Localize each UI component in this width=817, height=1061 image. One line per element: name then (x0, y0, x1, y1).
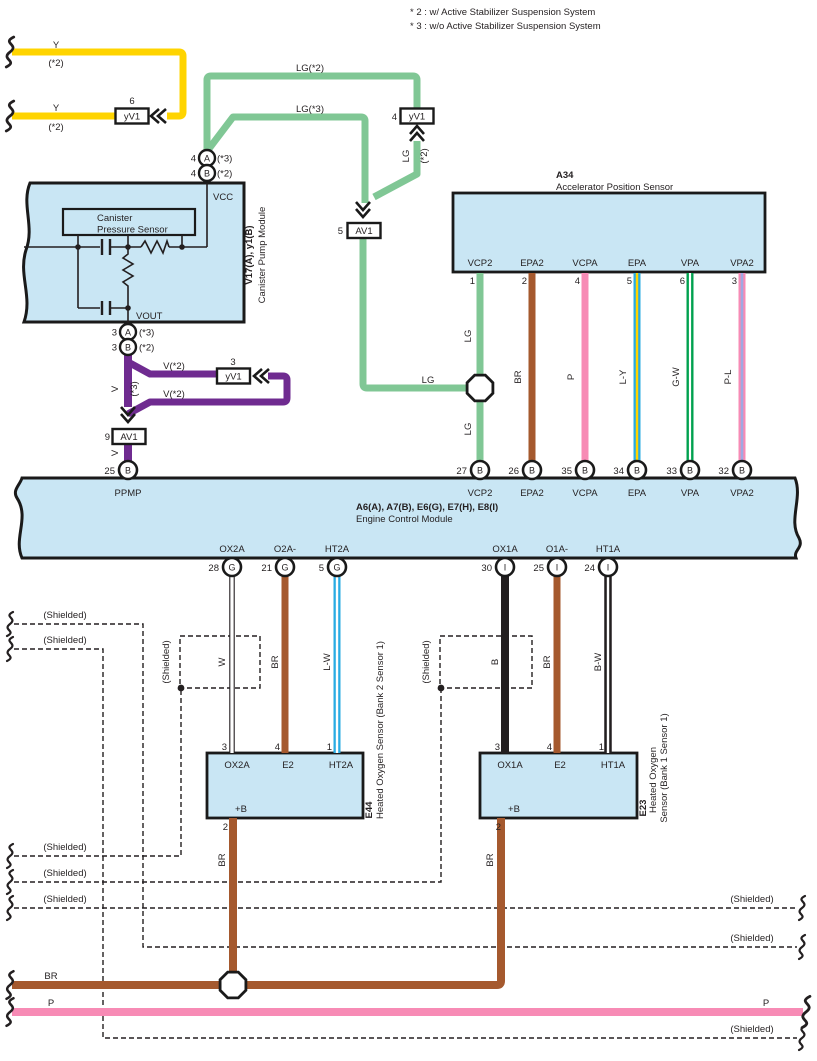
ecm-top-pin-label: EPA2 (520, 488, 544, 499)
shielded-label: (Shielded) (43, 868, 86, 879)
a34-pin-label: EPA (628, 258, 647, 269)
ecm-top-pin-label: VPA (681, 488, 700, 499)
wire-y-loop (12, 52, 183, 116)
ecm-top-pin-letter: B (582, 466, 588, 476)
ecm-ppmp-label: PPMP (115, 488, 142, 499)
wire-v2-branch-return (128, 376, 287, 414)
wire-color-label: L-W (322, 653, 333, 670)
wire-lg2-top (207, 76, 417, 180)
e23-shield-box (440, 636, 532, 688)
connector-arrow-up-icon (410, 126, 424, 141)
canister-sensor-line1: Canister (97, 213, 132, 224)
e23-shield-dot (438, 685, 445, 692)
ecm-bottom-pin-label: O2A- (274, 544, 296, 555)
v-note: (*3) (129, 381, 140, 396)
a34-pin-label: EPA2 (520, 258, 544, 269)
a34-name: Accelerator Position Sensor (556, 182, 673, 193)
ecm-top-pin-letter: B (477, 466, 483, 476)
ecm-top-pin-num: 32 (718, 466, 729, 477)
e23-name-line2: Sensor (Bank 1 Sensor 1) (659, 713, 670, 822)
a34-pin-label: VPA (681, 258, 700, 269)
e44-pin-label: HT2A (329, 760, 354, 771)
canister-vcc: VCC (213, 192, 233, 203)
e23-plusb-num: 2 (496, 822, 501, 833)
shielded-label: (Shielded) (43, 610, 86, 621)
ecm-top-pin-num: 34 (613, 466, 624, 477)
wire-color-label: BR (270, 655, 281, 668)
canister-bot-conn-num: 3 (112, 328, 117, 339)
ecm-bottom-pin-letter: G (281, 563, 288, 573)
e23-pin-num: 4 (547, 742, 552, 753)
y-wire1-note: (*2) (48, 58, 63, 69)
canister-bot-conn-letter: B (125, 343, 131, 353)
e44-pin-label: OX2A (224, 760, 250, 771)
ecm-bottom-pin-letter: I (504, 563, 507, 573)
ecm-bottom-pin-label: O1A- (546, 544, 568, 555)
wire-color-label: BR (513, 370, 524, 383)
lg2-label: LG(*2) (296, 63, 324, 74)
conn-yv1-green-label: yV1 (409, 112, 425, 123)
a34-pin-label: VPA2 (730, 258, 754, 269)
wire-color-label: P-L (723, 370, 734, 385)
y-wire2-note: (*2) (48, 122, 63, 133)
note-3: * 3 : w/o Active Stabilizer Suspension S… (410, 21, 601, 32)
ecm-bottom-pin-num: 5 (319, 563, 324, 574)
e44-plusb-num: 2 (223, 822, 228, 833)
lg-vert-label: LG (401, 150, 412, 163)
e23-name-line1: Heated Oxygen (648, 747, 659, 813)
a34-pin-label: VCPA (572, 258, 598, 269)
canister-vout: VOUT (136, 311, 163, 322)
ecm-name: Engine Control Module (356, 514, 453, 525)
canister-top-conn-note: (*3) (217, 154, 232, 165)
ecm-top-pin-letter: B (739, 466, 745, 476)
ecm-top-pin-label: VCPA (572, 488, 598, 499)
wire-color-label: L-Y (618, 369, 629, 384)
ecm-top-pin-label: VCP2 (468, 488, 493, 499)
br-rail-label: BR (44, 971, 57, 982)
ecm-top-pin-num: 35 (561, 466, 572, 477)
connector-arrow-left-icon (151, 109, 166, 123)
wire-color-label: BR (485, 853, 496, 866)
conn-av1-purple-label: AV1 (120, 432, 137, 443)
ecm-top-pin-label: EPA (628, 488, 647, 499)
shield-line-1 (14, 624, 797, 947)
wire-color-label: B (490, 659, 501, 665)
wire-color-label: G-W (671, 367, 682, 387)
conn-av1-green-num: 5 (338, 226, 343, 237)
a34-pin-num: 6 (680, 276, 685, 287)
conn-av1-green-label: AV1 (355, 226, 372, 237)
v2-top-label: V(*2) (163, 361, 185, 372)
p-rail-label-right: P (763, 998, 769, 1009)
shielded-label: (Shielded) (161, 640, 172, 683)
ecm-top-pin-letter: B (687, 466, 693, 476)
conn-yv1-yellow-label: yV1 (124, 112, 140, 123)
ecm-ppmp-num: 25 (104, 466, 115, 477)
shielded-label: (Shielded) (730, 894, 773, 905)
y-wire1-label: Y (53, 40, 60, 51)
e23-pin-label: OX1A (497, 760, 523, 771)
e23-plusb-label: +B (508, 804, 520, 815)
v-label: V (110, 385, 121, 392)
canister-top-conn-num: 4 (191, 169, 196, 180)
e44-pin-num: 4 (275, 742, 280, 753)
wiring-diagram-page: * 2 : w/ Active Stabilizer Suspension Sy… (0, 0, 817, 1061)
wire-color-label: BR (542, 655, 553, 668)
shielded-label: (Shielded) (43, 635, 86, 646)
wire-color-label: BR (217, 853, 228, 866)
canister-bot-conn-note: (*2) (139, 343, 154, 354)
ecm-top-pin-num: 33 (666, 466, 677, 477)
e44-pin-num: 3 (222, 742, 227, 753)
lg-h-label: LG (422, 375, 435, 386)
canister-top-conn-note: (*2) (217, 169, 232, 180)
ecm-top-pin-num: 26 (508, 466, 519, 477)
wiring-diagram: * 2 : w/ Active Stabilizer Suspension Sy… (0, 0, 817, 1061)
ecm-bottom-pin-label: OX1A (492, 544, 518, 555)
p-rail-label-left: P (48, 998, 54, 1009)
canister-name: Canister Pump Module (257, 207, 268, 304)
note-2: * 2 : w/ Active Stabilizer Suspension Sy… (410, 7, 595, 18)
shielded-label: (Shielded) (421, 640, 432, 683)
ecm-top-pin-label: VPA2 (730, 488, 754, 499)
e23-pin-label: HT1A (601, 760, 626, 771)
e44-pin-num: 1 (327, 742, 332, 753)
e23-pin-label: E2 (554, 760, 566, 771)
a34-pin-num: 3 (732, 276, 737, 287)
canister-top-conn-letter: A (204, 154, 210, 164)
e44-plusb-label: +B (235, 804, 247, 815)
e23-pin-num: 3 (495, 742, 500, 753)
ecm-bottom-pin-letter: I (556, 563, 559, 573)
shield-line-2 (14, 649, 797, 1038)
conn-yv1-purple-label: yV1 (225, 372, 241, 383)
ecm-bottom-pin-label: HT1A (596, 544, 621, 555)
wire-color-label: B-W (593, 653, 604, 672)
shielded-label: (Shielded) (43, 894, 86, 905)
ecm-bottom-pin-letter: G (228, 563, 235, 573)
ecm-bottom-pin-num: 28 (208, 563, 219, 574)
e44-shield-dot (178, 685, 185, 692)
e44-id: E44 (364, 801, 375, 819)
wire-lg2-drop (374, 141, 417, 197)
wire-color-label: W (217, 657, 228, 666)
conn-yv1-green-num: 4 (392, 112, 397, 123)
canister-bot-conn-num: 3 (112, 343, 117, 354)
splice-junction-br (220, 972, 246, 998)
a34-box (453, 193, 765, 272)
shielded-label: (Shielded) (43, 842, 86, 853)
ecm-bottom-pin-letter: G (333, 563, 340, 573)
lg3-label: LG(*3) (296, 104, 324, 115)
canister-bot-conn-letter: A (125, 328, 131, 338)
canister-top-conn-num: 4 (191, 154, 196, 165)
ecm-ppmp-letter: B (125, 466, 131, 476)
ecm-id: A6(A), A7(B), E6(G), E7(H), E8(I) (356, 502, 498, 513)
v-below-label: V (110, 449, 121, 456)
a34-id: A34 (556, 170, 574, 181)
wire-color-label: P (566, 374, 577, 380)
shielded-label: (Shielded) (730, 933, 773, 944)
lg-below-label: LG (463, 423, 474, 436)
shielded-label: (Shielded) (730, 1024, 773, 1035)
ecm-top-pin-num: 27 (456, 466, 467, 477)
ecm-bottom-pin-num: 25 (533, 563, 544, 574)
connector-arrow-down2-icon (121, 407, 135, 422)
ecm-bottom-pin-label: OX2A (219, 544, 245, 555)
a34-pin-num: 2 (522, 276, 527, 287)
ecm-top-pin-letter: B (634, 466, 640, 476)
e44-pin-label: E2 (282, 760, 294, 771)
v2-bottom-label: V(*2) (163, 389, 185, 400)
lg-vert-note: (*2) (419, 148, 430, 163)
conn-yv1-yellow-num: 6 (129, 96, 134, 107)
ecm-bottom-pin-num: 30 (481, 563, 492, 574)
a34-pin-num: 1 (470, 276, 475, 287)
a34-pin-label: VCP2 (468, 258, 493, 269)
a34-pin-num: 4 (575, 276, 580, 287)
connector-arrow-down-icon (356, 202, 370, 217)
conn-av1-purple-num: 9 (105, 432, 110, 443)
shield-dashed-lines (14, 624, 797, 1038)
connector-arrow-left2-icon (254, 369, 269, 383)
a34-pin-num: 5 (627, 276, 632, 287)
ecm-bottom-pin-letter: I (607, 563, 610, 573)
canister-sensor-line2: Pressure Sensor (97, 225, 168, 236)
ecm-top-pin-letter: B (529, 466, 535, 476)
canister-top-conn-letter: B (204, 169, 210, 179)
canister-bot-conn-note: (*3) (139, 328, 154, 339)
y-wire2-label: Y (53, 103, 60, 114)
e23-pin-num: 1 (599, 742, 604, 753)
ecm-bottom-pin-num: 24 (584, 563, 595, 574)
ecm-bottom-pin-label: HT2A (325, 544, 350, 555)
splice-junction-lg (467, 375, 493, 401)
canister-id: V17(A), y1(B) (244, 225, 255, 284)
ecm-bottom-pin-num: 21 (261, 563, 272, 574)
lg-above-label: LG (463, 330, 474, 343)
canister-pump-module-box (24, 183, 244, 322)
shield-line-3 (14, 688, 181, 856)
e44-name: Heated Oxygen Sensor (Bank 2 Sensor 1) (375, 641, 386, 819)
conn-yv1-purple-num: 3 (230, 357, 235, 368)
